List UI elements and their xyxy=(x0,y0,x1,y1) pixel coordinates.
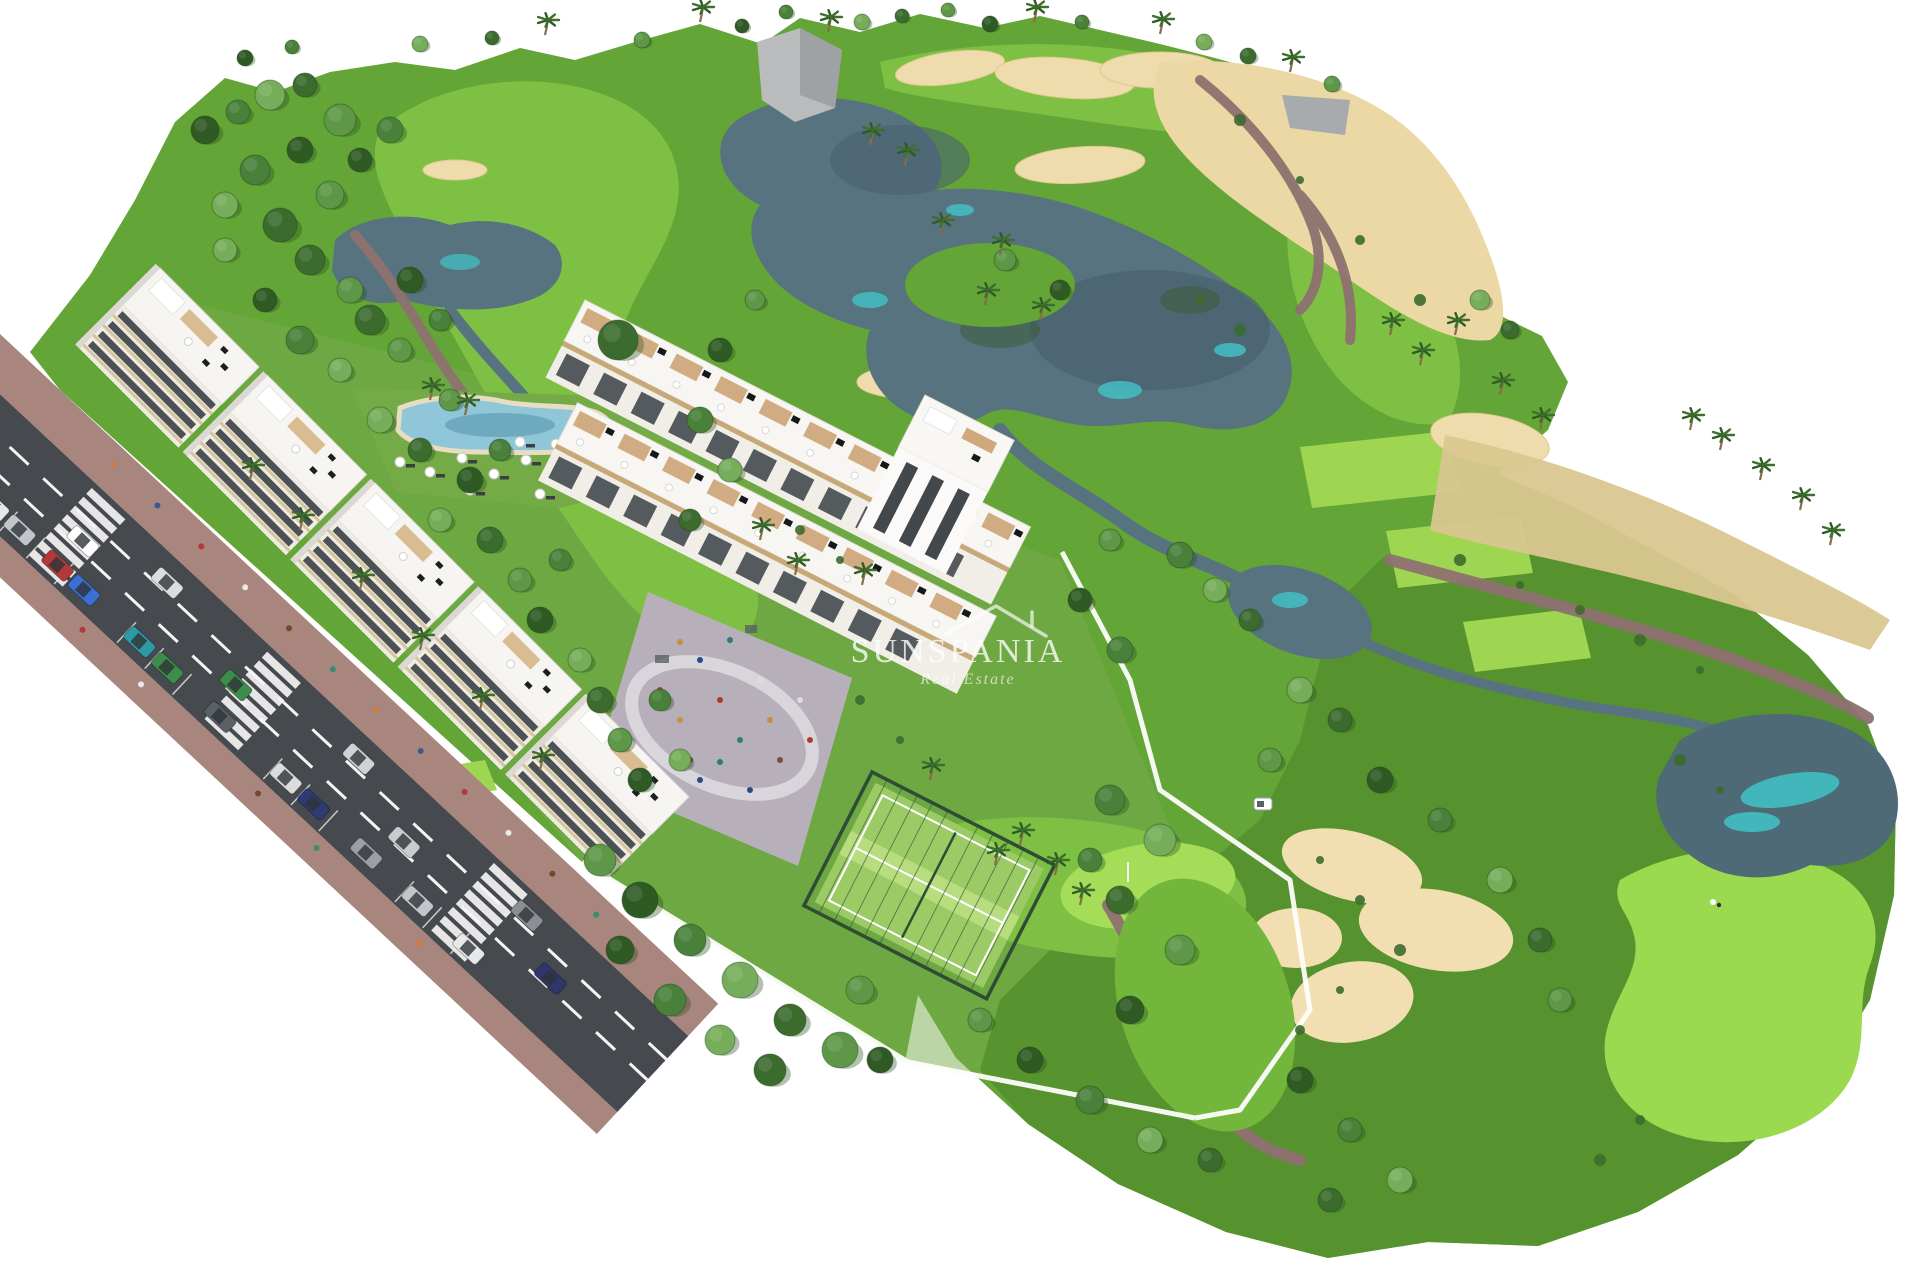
watermark-tagline: Real Estate xyxy=(919,671,1015,688)
golf-cart xyxy=(1254,798,1272,810)
aerial-render-golf-resort: SUNSPANIA Real Estate xyxy=(0,0,1920,1280)
golf-resort-scene: SUNSPANIA Real Estate xyxy=(0,0,1920,1280)
watermark-brand: SUNSPANIA xyxy=(851,633,1066,670)
